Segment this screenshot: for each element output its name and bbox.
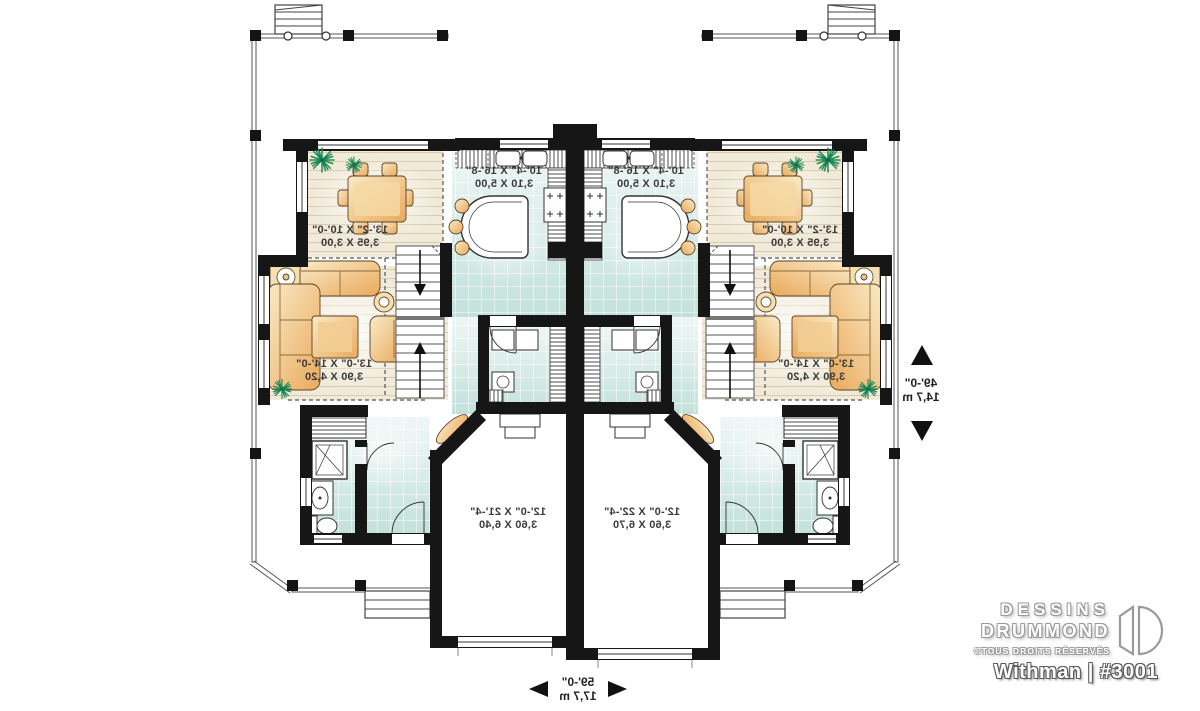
room-label-living-left: 13'-0" X 14'-0"3,90 X 4,20 — [296, 358, 372, 384]
plan-number: #3001 — [1100, 661, 1158, 683]
right-unit — [582, 5, 900, 648]
room-label-garage-right: 12'-0" X 22'-4"3,60 X 6,70 — [604, 506, 680, 532]
depth-dimension-label: 49'-0"14,7 m — [902, 376, 939, 404]
depth-arrow-down — [911, 421, 933, 441]
drummond-door-icon — [1112, 600, 1168, 660]
depth-arrow-up — [911, 345, 933, 365]
staircase — [396, 246, 446, 398]
room-label-kitchen-right: 10'-4" X 16'-8"3,10 X 5,00 — [608, 165, 684, 191]
room-label-kitchen-left: 10'-4" X 16'-8"3,10 X 5,00 — [466, 165, 542, 191]
room-label-living-right: 13'-0" X 14'-0"3,90 X 4,20 — [778, 358, 854, 384]
brand-name-line1: DESSINS — [974, 600, 1110, 620]
room-label-garage-left: 12'-0" X 21'-4"3,60 X 6,40 — [470, 506, 546, 532]
brand-logo: DESSINS DRUMMOND ©TOUS DROITS RÉSERVÉS — [974, 600, 1110, 656]
room-label-dining-left: 13'-2" X 10'-0"3,95 X 3,00 — [312, 224, 388, 250]
plan-name: Withman — [994, 661, 1082, 683]
brand-name-line2: DRUMMOND — [974, 621, 1110, 642]
width-arrow-right — [608, 681, 627, 697]
plan-title: Withman | #3001 — [994, 661, 1158, 684]
plan-title-divider: | — [1088, 661, 1094, 683]
floor-plan-page: 13'-2" X 10'-0"3,95 X 3,00 10'-4" X 16'-… — [0, 0, 1200, 711]
width-dimension-label: 59'-0"17,7 m — [559, 675, 596, 703]
room-label-dining-right: 13'-2" X 10'-0"3,95 X 3,00 — [762, 224, 838, 250]
left-unit — [250, 5, 568, 648]
width-arrow-left — [529, 681, 548, 697]
brand-copyright: ©TOUS DROITS RÉSERVÉS — [974, 646, 1110, 656]
